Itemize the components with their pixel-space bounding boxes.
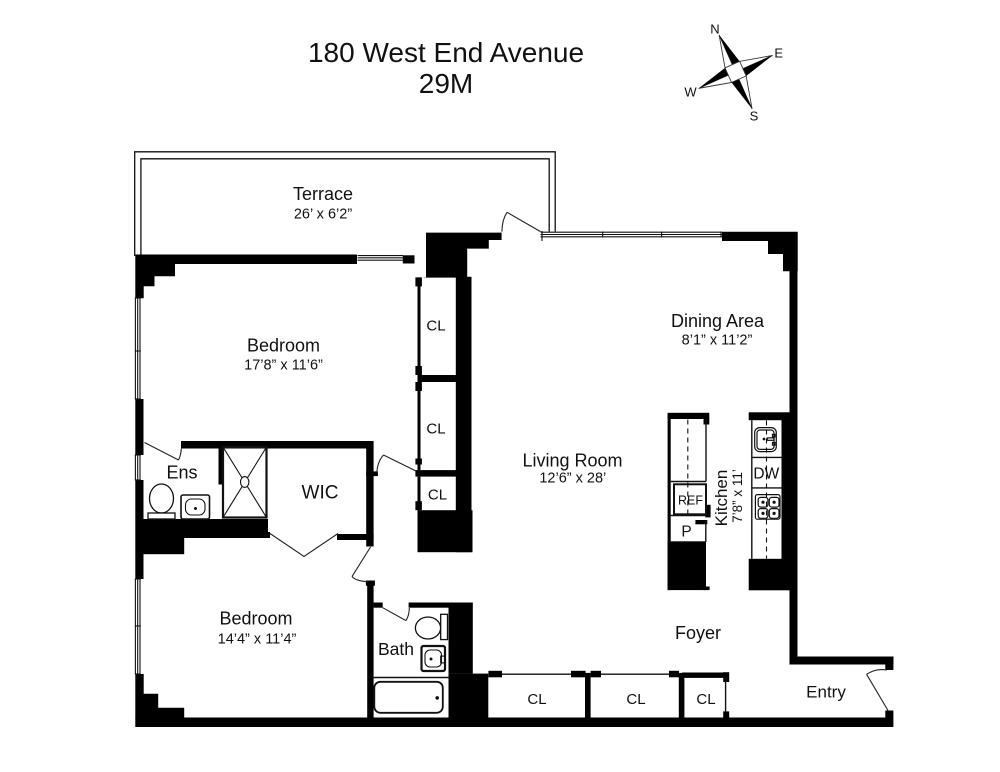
svg-text:W: W bbox=[684, 85, 697, 100]
svg-text:Foyer: Foyer bbox=[675, 623, 721, 643]
svg-text:Bedroom: Bedroom bbox=[219, 609, 292, 629]
svg-text:Ens: Ens bbox=[166, 463, 197, 483]
svg-text:26’ x 6’2”: 26’ x 6’2” bbox=[294, 207, 352, 223]
svg-text:29M: 29M bbox=[419, 68, 473, 99]
svg-text:DW: DW bbox=[753, 466, 779, 483]
svg-text:Living Room: Living Room bbox=[522, 451, 622, 471]
svg-text:Bath: Bath bbox=[378, 639, 414, 659]
svg-text:S: S bbox=[750, 109, 759, 124]
svg-text:CL: CL bbox=[428, 487, 447, 504]
svg-text:Kitchen: Kitchen bbox=[712, 470, 731, 527]
svg-text:CL: CL bbox=[527, 691, 546, 708]
svg-text:12’6” x 28’: 12’6” x 28’ bbox=[539, 471, 606, 487]
svg-text:N: N bbox=[710, 22, 719, 37]
svg-text:Entry: Entry bbox=[806, 683, 846, 702]
svg-text:180 West End Avenue: 180 West End Avenue bbox=[308, 37, 584, 68]
svg-text:7’8” x 11’: 7’8” x 11’ bbox=[730, 469, 745, 523]
svg-text:CL: CL bbox=[696, 691, 715, 708]
svg-text:E: E bbox=[774, 46, 783, 61]
svg-text:17’8” x 11’6”: 17’8” x 11’6” bbox=[244, 358, 323, 374]
svg-text:P: P bbox=[681, 524, 691, 541]
svg-text:Bedroom: Bedroom bbox=[247, 336, 320, 356]
svg-text:Terrace: Terrace bbox=[293, 184, 353, 204]
svg-text:REF: REF bbox=[678, 494, 703, 508]
svg-text:CL: CL bbox=[626, 691, 645, 708]
svg-text:CL: CL bbox=[426, 318, 445, 335]
svg-text:8’1” x 11’2”: 8’1” x 11’2” bbox=[682, 333, 753, 349]
svg-text:Dining Area: Dining Area bbox=[671, 311, 765, 331]
svg-text:WIC: WIC bbox=[302, 483, 339, 504]
svg-text:CL: CL bbox=[426, 421, 445, 438]
svg-text:14’4” x 11’4”: 14’4” x 11’4” bbox=[218, 632, 297, 648]
